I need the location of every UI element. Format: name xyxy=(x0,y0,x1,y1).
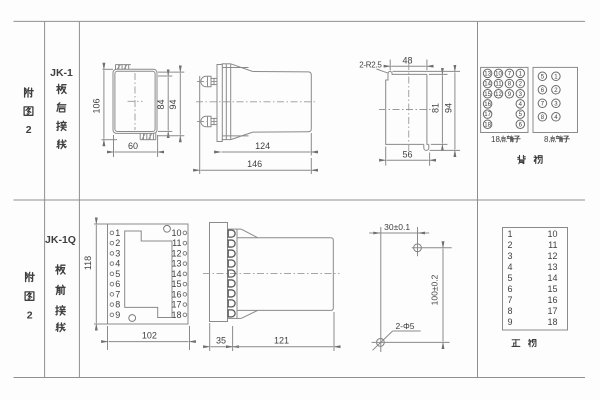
svg-text:14: 14 xyxy=(547,273,557,283)
svg-text:6: 6 xyxy=(115,279,120,289)
svg-text:1: 1 xyxy=(115,228,120,238)
svg-text:18: 18 xyxy=(171,310,181,320)
svg-text:5: 5 xyxy=(115,269,120,279)
svg-text:121: 121 xyxy=(274,335,289,345)
svg-text:3: 3 xyxy=(508,251,513,261)
svg-text:2-R2.5: 2-R2.5 xyxy=(359,61,382,70)
svg-text:18: 18 xyxy=(491,135,500,144)
svg-text:10: 10 xyxy=(495,72,502,78)
svg-text:17: 17 xyxy=(484,112,491,118)
svg-text:8: 8 xyxy=(508,306,513,316)
svg-text:48: 48 xyxy=(402,56,412,66)
svg-text:1: 1 xyxy=(508,229,513,239)
svg-text:35: 35 xyxy=(216,335,226,345)
svg-text:100±0.2: 100±0.2 xyxy=(429,274,439,305)
svg-text:81: 81 xyxy=(430,103,440,113)
svg-text:JK-1: JK-1 xyxy=(50,67,73,79)
svg-text:2: 2 xyxy=(27,310,33,322)
svg-text:6: 6 xyxy=(508,284,513,294)
svg-text:3: 3 xyxy=(115,248,120,258)
svg-text:124: 124 xyxy=(255,141,270,151)
svg-text:14: 14 xyxy=(171,269,181,279)
svg-text:17: 17 xyxy=(171,300,181,310)
svg-text:16: 16 xyxy=(547,295,557,305)
svg-text:11: 11 xyxy=(548,240,557,250)
svg-text:16: 16 xyxy=(171,289,181,299)
svg-text:11: 11 xyxy=(495,82,502,88)
svg-text:18: 18 xyxy=(484,122,491,128)
svg-text:2: 2 xyxy=(508,240,513,250)
svg-text:4: 4 xyxy=(115,259,120,269)
svg-text:15: 15 xyxy=(171,279,181,289)
svg-text:2: 2 xyxy=(115,238,120,248)
svg-text:12: 12 xyxy=(171,248,181,258)
svg-text:7: 7 xyxy=(508,295,513,305)
svg-text:5: 5 xyxy=(508,273,513,283)
svg-text:13: 13 xyxy=(547,262,557,272)
svg-text:10: 10 xyxy=(547,229,557,239)
svg-text:56: 56 xyxy=(402,150,412,160)
svg-text:8: 8 xyxy=(544,135,549,144)
svg-text:2-Φ5: 2-Φ5 xyxy=(395,321,414,331)
svg-text:60: 60 xyxy=(128,141,138,151)
svg-text:102: 102 xyxy=(142,330,157,340)
svg-text:7: 7 xyxy=(115,289,120,299)
svg-text:14: 14 xyxy=(484,82,491,88)
svg-text:10: 10 xyxy=(171,228,181,238)
svg-text:2: 2 xyxy=(26,124,32,136)
svg-text:16: 16 xyxy=(484,102,491,108)
svg-text:12: 12 xyxy=(547,251,557,261)
svg-text:8: 8 xyxy=(115,300,120,310)
svg-text:146: 146 xyxy=(247,159,262,169)
svg-text:15: 15 xyxy=(484,92,491,98)
svg-text:94: 94 xyxy=(443,103,453,113)
svg-text:JK-1Q: JK-1Q xyxy=(45,234,76,246)
svg-text:118: 118 xyxy=(83,256,93,270)
svg-text:15: 15 xyxy=(547,284,557,294)
svg-text:12: 12 xyxy=(495,92,502,98)
svg-text:13: 13 xyxy=(484,72,491,78)
svg-text:84: 84 xyxy=(156,99,166,109)
svg-text:30±0.1: 30±0.1 xyxy=(384,222,410,232)
svg-text:9: 9 xyxy=(115,310,120,320)
svg-text:17: 17 xyxy=(547,306,557,316)
svg-text:106: 106 xyxy=(91,98,101,113)
svg-text:13: 13 xyxy=(171,259,181,269)
svg-text:18: 18 xyxy=(547,317,557,327)
svg-text:94: 94 xyxy=(168,99,178,109)
svg-text:4: 4 xyxy=(508,262,513,272)
svg-text:11: 11 xyxy=(172,238,181,248)
svg-text:9: 9 xyxy=(508,317,513,327)
